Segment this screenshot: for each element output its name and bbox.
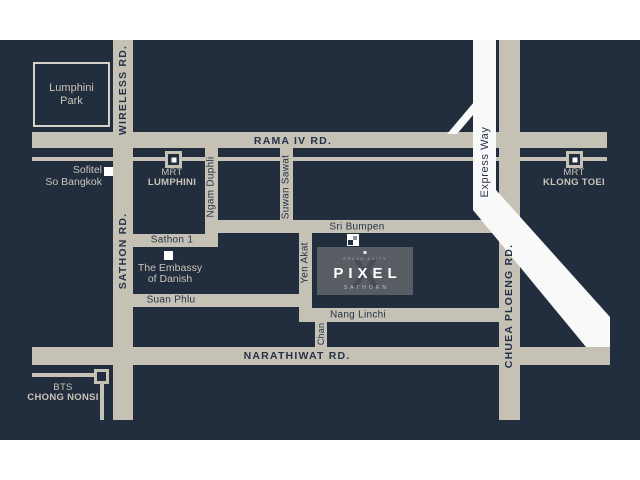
pixel-project-marker (347, 234, 359, 246)
embassy-marker (164, 251, 173, 260)
pixel-marker-gray-square (353, 236, 357, 240)
lumphini-park-label: Lumphini Park (49, 82, 94, 108)
label-wireless: WIRELESS RD. (117, 45, 129, 135)
mrt-lumphini-marker-core (171, 157, 176, 162)
brand-icon (364, 251, 367, 254)
label-suwan-sawat: Suwan Sawat (281, 155, 292, 219)
pixel-marker-dark-square (348, 240, 353, 245)
brand-name: GRAND UNITY (317, 256, 413, 261)
label-chuea-ploeng: CHUEA PLOENG RD. (503, 244, 515, 368)
project-name: PIXEL (317, 265, 413, 282)
mrt-klong-toei-label: MRT KLONG TOEI (543, 168, 605, 188)
expressway-main (473, 40, 610, 347)
label-nang-linchi: Nang Linchi (330, 310, 386, 321)
mrt-lumphini-label: MRT LUMPHINI (148, 168, 196, 188)
sofitel-marker (104, 167, 113, 176)
mrt-klong-toei-marker (566, 151, 583, 168)
sofitel-label: Sofitel So Bangkok (45, 164, 102, 188)
label-express-way: Express Way (479, 127, 491, 198)
label-sathon-1: Sathon 1 (151, 235, 193, 246)
label-yen-akat: Yen Akat (300, 242, 311, 284)
label-suan-phlu: Suan Phlu (147, 295, 196, 306)
location-map-page: RAMA IV RD. WIRELESS RD. SATHON RD. Ngam… (0, 0, 640, 480)
embassy-label: The Embassy of Danish (138, 263, 202, 284)
label-chan: Chan (316, 323, 326, 345)
label-sri-bumpen: Sri Bumpen (329, 222, 384, 233)
bts-chong-nonsi-label: BTS CHONG NONSI (27, 383, 98, 403)
pixel-logo-box: X GRAND UNITY PIXEL SATHORN (317, 247, 413, 295)
label-narathiwat: NARATHIWAT RD. (244, 350, 351, 362)
lumphini-park-box: Lumphini Park (33, 62, 110, 127)
label-ngam-duphli: Ngam Duphli (206, 156, 217, 217)
bts-chong-nonsi-marker (94, 369, 109, 384)
mrt-klong-toei-marker-core (572, 157, 577, 162)
project-district: SATHORN (317, 285, 413, 291)
label-rama-iv: RAMA IV RD. (254, 135, 332, 147)
mrt-lumphini-marker (165, 151, 182, 168)
label-sathon: SATHON RD. (117, 213, 129, 290)
